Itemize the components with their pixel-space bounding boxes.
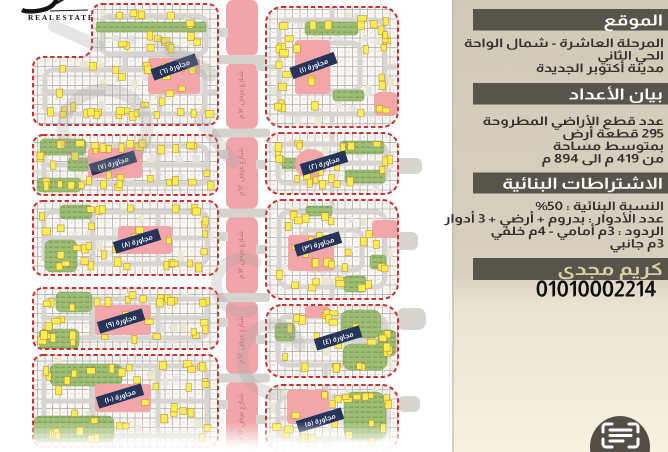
svg-text:REALESTATE: REALESTATE [28, 13, 95, 22]
